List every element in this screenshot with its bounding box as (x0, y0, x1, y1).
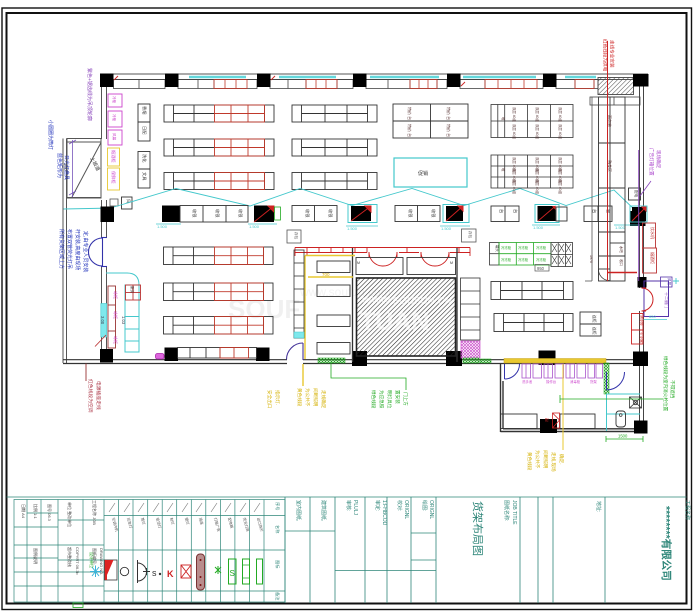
svg-text:香烟: 香烟 (141, 106, 148, 114)
svg-text:M: M (357, 261, 360, 265)
svg-text:烟酒柜: 烟酒柜 (650, 252, 656, 264)
svg-text:走线确定: 走线确定 (320, 390, 327, 409)
svg-text:日光灯盘具: 日光灯盘具 (63, 155, 70, 180)
svg-text:红色线段为空调: 红色线段为空调 (87, 379, 94, 413)
svg-text:货架: 货架 (590, 379, 597, 384)
svg-text:1.500: 1.500 (533, 225, 544, 230)
svg-text:消毒柜: 消毒柜 (570, 379, 581, 384)
svg-text:WWW.SOUFUN.CN: WWW.SOUFUN.CN (362, 296, 452, 307)
svg-text:1.500: 1.500 (157, 224, 168, 229)
svg-text:比例 1:1: 比例 1:1 (33, 504, 39, 519)
svg-text:操作台: 操作台 (546, 379, 557, 384)
svg-text:为应急照: 为应急照 (378, 390, 385, 409)
svg-text:收口: 收口 (619, 259, 624, 266)
svg-text:图例说明: 图例说明 (33, 548, 39, 564)
svg-text:为公共不: 为公共不 (304, 388, 311, 407)
svg-text:电源插座走线: 电源插座走线 (95, 381, 102, 410)
svg-text:1.03: 1.03 (121, 316, 126, 325)
svg-text:S: S (230, 569, 235, 578)
svg-text:ORIGNL: ORIGNL (403, 500, 409, 519)
svg-text:日期 A4: 日期 A4 (21, 504, 27, 519)
svg-text:收银: 收银 (430, 209, 437, 218)
svg-text:收银: 收银 (191, 209, 198, 218)
svg-text:冰柜: 冰柜 (113, 311, 119, 319)
svg-text:图标: 图标 (274, 560, 281, 568)
svg-text:冷冻柜: 冷冻柜 (501, 257, 512, 262)
svg-text:PLULJ: PLULJ (352, 500, 358, 516)
svg-text:配: 配 (545, 417, 549, 422)
svg-text:双层 40组: 双层 40组 (512, 179, 517, 194)
svg-text:冷冻柜: 冷冻柜 (536, 257, 547, 262)
svg-text:TUAN: TUAN (360, 308, 429, 336)
svg-text:冷冻柜: 冷冻柜 (536, 245, 547, 250)
svg-text:JOB TITLE: JOB TITLE (511, 500, 517, 525)
svg-text:双层 40组: 双层 40组 (558, 107, 563, 122)
svg-text:黄色线段: 黄色线段 (296, 388, 303, 407)
svg-text:双层 40组: 双层 40组 (558, 124, 563, 139)
svg-text:端头: 端头 (495, 245, 500, 252)
svg-text:连柜: 连柜 (592, 327, 597, 335)
svg-text:指示灯.: 指示灯. (274, 390, 281, 405)
svg-text:K: K (167, 569, 174, 579)
svg-text:洗化: 洗化 (141, 154, 148, 163)
svg-text:服务: 服务 (130, 286, 135, 294)
svg-text:M: M (450, 261, 453, 265)
svg-text:冰柜: 冰柜 (113, 291, 119, 299)
svg-text:消火栓: 消火栓 (639, 315, 644, 326)
svg-text:SOUF: SOUF (228, 294, 300, 324)
svg-text:饮水机: 饮水机 (650, 227, 656, 239)
svg-text:双层 40组: 双层 40组 (558, 179, 563, 194)
svg-text:冷冻柜: 冷冻柜 (501, 245, 512, 250)
svg-text:3.00: 3.00 (100, 316, 105, 325)
svg-text:工程名称: 工程名称 (684, 500, 691, 520)
svg-text:确定.: 确定. (558, 454, 565, 464)
svg-text:冷柜: 冷柜 (112, 114, 117, 122)
svg-text:现场确定: 现场确定 (655, 150, 662, 169)
svg-text:设计单位: 设计单位 (89, 552, 95, 568)
svg-text:图纸名称:: 图纸名称: (503, 500, 510, 521)
svg-text:双层 40组: 双层 40组 (535, 179, 540, 194)
svg-text:定,由专业人员安装: 定,由专业人员安装 (82, 231, 89, 272)
svg-text:单位 整改单位: 单位 整改单位 (67, 502, 73, 527)
svg-text:绘图:: 绘图: (421, 500, 428, 511)
svg-text:1970: 1970 (589, 255, 593, 263)
svg-text:********有限公司: ********有限公司 (660, 506, 673, 581)
svg-text:双层 40组: 双层 40组 (512, 124, 517, 139)
svg-text:水吧: 水吧 (619, 246, 624, 253)
svg-text:双层 40组: 双层 40组 (535, 107, 540, 122)
svg-text:收银: 收银 (304, 209, 311, 218)
svg-text:杆安装,高度由现场: 杆安装,高度由现场 (74, 229, 81, 270)
svg-text:布置双管荧光灯吊: 布置双管荧光灯吊 (66, 229, 73, 269)
svg-text:文具: 文具 (141, 172, 148, 181)
svg-text:审定:: 审定: (374, 500, 381, 511)
svg-text:1.500: 1.500 (615, 225, 626, 230)
svg-text:特价 台: 特价 台 (407, 107, 413, 120)
svg-text:间断照明: 间断照明 (312, 388, 319, 407)
svg-text:图号 06.3: 图号 06.3 (47, 504, 53, 522)
svg-text:校对:: 校对: (396, 500, 403, 511)
svg-text:审核:: 审核: (345, 500, 352, 511)
svg-text:风幕: 风幕 (112, 133, 117, 141)
svg-text:走线,现场: 走线,现场 (550, 452, 557, 472)
svg-text:650: 650 (649, 314, 656, 319)
svg-text:门上方: 门上方 (402, 392, 409, 406)
svg-text:台: 台 (605, 209, 612, 213)
svg-text:双层 40组: 双层 40组 (535, 124, 540, 139)
svg-text:红色线段为供电: 红色线段为供电 (602, 39, 609, 72)
svg-text:置安装: 置安装 (394, 390, 401, 404)
svg-text:走线专业安装: 走线专业安装 (609, 40, 616, 68)
svg-text:工程名称 JOB: 工程名称 JOB (92, 500, 98, 525)
svg-text:1500: 1500 (618, 434, 628, 439)
svg-text:冷冻柜: 冷冻柜 (518, 257, 529, 262)
svg-text:存包: 存包 (294, 232, 299, 240)
svg-text:冷冻柜: 冷冻柜 (518, 245, 529, 250)
svg-text:风幕: 风幕 (667, 278, 672, 286)
svg-text:序号: 序号 (274, 502, 281, 510)
svg-text:所有货架区域上方: 所有货架区域上方 (58, 229, 65, 269)
svg-text:促销: 促销 (418, 170, 428, 177)
svg-text:广告灯箱位置: 广告灯箱位置 (648, 148, 655, 176)
svg-text:冷柜: 冷柜 (112, 96, 117, 104)
svg-text:不得遮挡: 不得遮挡 (669, 380, 676, 399)
svg-text:特价 台: 特价 台 (446, 124, 452, 137)
svg-text:1.500: 1.500 (347, 226, 358, 231)
svg-text:室内图纸,: 室内图纸, (295, 500, 302, 521)
svg-text:货架布局图: 货架布局图 (471, 501, 485, 556)
svg-text:ORIGNL: ORIGNL (428, 500, 434, 519)
svg-text:十二侧门: 十二侧门 (664, 292, 670, 308)
svg-text:保鲜柜: 保鲜柜 (110, 171, 117, 184)
svg-text:备注: 备注 (274, 592, 281, 601)
svg-text:特价 台: 特价 台 (446, 107, 452, 120)
svg-text:明灯具位: 明灯具位 (386, 390, 393, 409)
svg-text:950: 950 (537, 266, 545, 271)
svg-text:收银: 收银 (237, 209, 244, 218)
svg-text:绿色线段: 绿色线段 (370, 390, 377, 409)
svg-text:冰柜: 冰柜 (113, 336, 119, 344)
svg-text:1.500: 1.500 (441, 226, 452, 231)
svg-text:小圆圈为筒灯: 小圆圈为筒灯 (47, 120, 54, 150)
svg-text:洗手池: 洗手池 (522, 379, 533, 384)
svg-text:存包: 存包 (468, 231, 473, 239)
svg-text:超市整改核: 超市整改核 (67, 547, 73, 567)
svg-text:连柜: 连柜 (592, 315, 597, 323)
svg-text:黄色线段: 黄色线段 (526, 452, 533, 471)
svg-text:收银: 收银 (407, 209, 414, 218)
svg-text:地址:: 地址: (595, 501, 602, 512)
svg-text:台: 台 (512, 209, 519, 213)
svg-text:建筑图纸,: 建筑图纸, (320, 500, 327, 521)
svg-text:s: s (152, 568, 157, 578)
svg-text:1:FHBCOD: 1:FHBCOD (381, 500, 387, 526)
svg-text:紫色+锯齿线为吊顶轮廓: 紫色+锯齿线为吊顶轮廓 (86, 68, 93, 121)
svg-text:绿色线段为室内消火栓位置: 绿色线段为室内消火栓位置 (662, 356, 669, 412)
svg-text:COPYRT 06.3b: COPYRT 06.3b (75, 547, 80, 575)
svg-text:双层 40组: 双层 40组 (512, 107, 517, 122)
svg-text:名称: 名称 (274, 525, 281, 533)
svg-text:为公共不: 为公共不 (534, 450, 541, 469)
svg-text:收银: 收银 (327, 209, 334, 218)
svg-text:间断照明: 间断照明 (542, 450, 549, 469)
svg-text:收银: 收银 (214, 209, 221, 218)
svg-text:烟酒柜: 烟酒柜 (110, 150, 117, 163)
svg-text:安全出口: 安全出口 (266, 390, 273, 409)
svg-text:蓝色矩形为: 蓝色矩形为 (56, 153, 63, 178)
svg-text:特价 台: 特价 台 (407, 124, 413, 137)
svg-text:台: 台 (498, 209, 505, 213)
svg-text:灭火器: 灭火器 (639, 332, 644, 343)
svg-text:1.500: 1.500 (249, 224, 260, 229)
